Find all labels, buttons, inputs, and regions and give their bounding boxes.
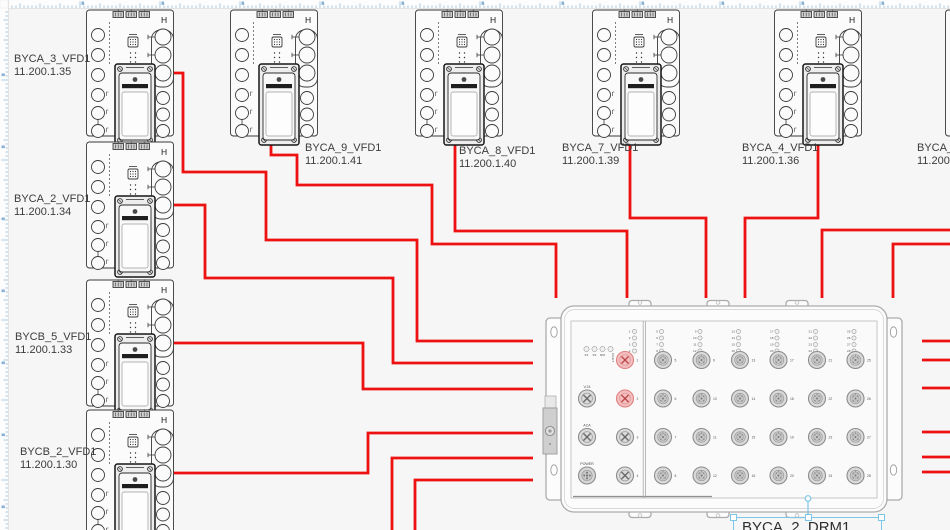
svg-text:3: 3 — [629, 343, 631, 347]
ruler-left — [0, 0, 9, 530]
svg-text:6: 6 — [656, 336, 658, 340]
device-name: BYCA_3_VFD1 — [14, 53, 90, 66]
vfd-drive-module — [115, 464, 155, 530]
device-ip: 11.200.1.40 — [459, 158, 535, 171]
drm-switch[interactable]: P1P2RMFAULT1234V.24ACAPOWER1234567856789… — [543, 301, 902, 518]
device-label[interactable]: BYCA_2_VFD111.200.1.34 — [14, 193, 90, 219]
m12-port-1[interactable] — [617, 352, 634, 369]
svg-text:4: 4 — [637, 474, 639, 478]
m12-port-4[interactable] — [617, 467, 634, 484]
m12-port-17[interactable] — [770, 352, 787, 369]
device-name: BYCB_5_VFD1 — [15, 331, 91, 344]
device-ip: 11.200.1.34 — [14, 206, 90, 219]
svg-text:16: 16 — [732, 349, 736, 353]
device-label[interactable]: BYCA_3_VFD111.200.1.35 — [14, 53, 90, 79]
svg-text:26: 26 — [867, 397, 871, 401]
svg-text:16: 16 — [752, 474, 756, 478]
m12-port-13[interactable] — [732, 352, 749, 369]
ethernet-wire-11[interactable] — [822, 230, 950, 298]
svg-text:20: 20 — [790, 474, 794, 478]
vfd-drive-module — [444, 64, 484, 145]
vfd-device[interactable]: H — [231, 9, 318, 145]
vfd-device[interactable]: H — [87, 279, 174, 415]
m12-port-5[interactable] — [655, 352, 672, 369]
svg-text:25: 25 — [867, 358, 871, 362]
svg-text:1: 1 — [629, 330, 631, 334]
vfd-drive-module — [115, 64, 155, 145]
svg-text:21: 21 — [809, 330, 813, 334]
svg-text:18: 18 — [790, 397, 794, 401]
svg-text:15: 15 — [732, 343, 736, 347]
device-label[interactable]: BYCB_2_VFD111.200.1.30 — [20, 446, 96, 472]
svg-text:10: 10 — [693, 336, 697, 340]
svg-text:12: 12 — [693, 349, 697, 353]
device-name: BYCA_9_VFD1 — [305, 142, 381, 155]
device-label[interactable]: BYCA_7_VFD111.200.1.39 — [562, 142, 638, 168]
device-ip: 11.200.1.35 — [14, 66, 90, 79]
vfd-drive-module — [115, 196, 155, 277]
m12-port-27[interactable] — [847, 429, 864, 446]
device-label[interactable]: BYCA_5_11.200.1 — [917, 142, 950, 168]
ethernet-wire-4[interactable] — [174, 433, 533, 473]
selection-handle[interactable] — [878, 514, 885, 521]
device-ip: 11.200.1.41 — [305, 155, 381, 168]
svg-text:28: 28 — [867, 474, 871, 478]
m12-port-21[interactable] — [809, 352, 826, 369]
svg-text:10: 10 — [713, 397, 717, 401]
device-h-label: H — [490, 15, 496, 25]
device-name: BYCA_4_VFD1 — [742, 142, 818, 155]
m12-port-26[interactable] — [847, 390, 864, 407]
svg-text:P1: P1 — [585, 353, 589, 357]
selection-anchor-handle[interactable] — [805, 496, 811, 502]
aux-port-power[interactable] — [579, 467, 596, 484]
ethernet-wire-12[interactable] — [893, 244, 950, 298]
svg-text:14: 14 — [752, 397, 756, 401]
svg-text:18: 18 — [770, 336, 774, 340]
svg-text:5: 5 — [675, 358, 677, 362]
svg-text:11: 11 — [713, 435, 717, 439]
svg-text:7: 7 — [656, 343, 658, 347]
svg-text:2: 2 — [637, 397, 639, 401]
vfd-device[interactable]: H — [946, 9, 950, 145]
aux-port-v24[interactable] — [579, 390, 596, 407]
topology-scene: HHHHHHHHHP1P2RMFAULT1234V.24ACAPOWER1234… — [0, 0, 950, 530]
svg-text:RM: RM — [600, 353, 605, 357]
svg-text:ACA: ACA — [583, 424, 591, 428]
svg-text:11: 11 — [693, 343, 696, 347]
m12-port-18[interactable] — [770, 390, 787, 407]
device-ip: 11.200.1.33 — [15, 344, 91, 357]
svg-text:25: 25 — [847, 330, 851, 334]
svg-text:23: 23 — [829, 435, 833, 439]
svg-text:6: 6 — [675, 397, 677, 401]
vfd-device[interactable]: H — [87, 409, 174, 530]
device-ip: 11.200.1.36 — [742, 155, 818, 168]
svg-text:P2: P2 — [593, 353, 597, 357]
m12-port-19[interactable] — [770, 429, 787, 446]
svg-text:15: 15 — [752, 435, 756, 439]
svg-text:13: 13 — [732, 330, 736, 334]
svg-text:FAULT: FAULT — [611, 353, 615, 362]
m12-port-23[interactable] — [809, 429, 826, 446]
m12-port-2[interactable] — [617, 390, 634, 407]
svg-text:2: 2 — [629, 336, 631, 340]
m12-port-22[interactable] — [809, 390, 826, 407]
m12-port-12[interactable] — [693, 467, 710, 484]
svg-text:24: 24 — [829, 474, 833, 478]
ethernet-wire-9[interactable] — [630, 140, 706, 298]
svg-text:9: 9 — [713, 358, 715, 362]
m12-port-24[interactable] — [809, 467, 826, 484]
svg-text:1: 1 — [637, 358, 639, 362]
vfd-drive-module — [803, 64, 843, 145]
svg-text:8: 8 — [675, 474, 677, 478]
m12-port-3[interactable] — [617, 429, 634, 446]
m12-port-16[interactable] — [732, 467, 749, 484]
vfd-device[interactable]: H — [87, 9, 174, 145]
m12-port-28[interactable] — [847, 467, 864, 484]
svg-text:17: 17 — [790, 358, 794, 362]
device-name: BYCA_2_VFD1 — [14, 193, 90, 206]
vfd-drive-module — [621, 64, 661, 145]
device-h-label: H — [849, 15, 855, 25]
device-h-label: H — [161, 15, 167, 25]
device-h-label: H — [305, 15, 311, 25]
svg-text:27: 27 — [867, 435, 871, 439]
device-h-label: H — [161, 147, 167, 157]
m12-port-11[interactable] — [693, 429, 710, 446]
m12-port-14[interactable] — [732, 390, 749, 407]
svg-text:7: 7 — [675, 435, 677, 439]
svg-text:21: 21 — [829, 358, 833, 362]
svg-text:22: 22 — [829, 397, 833, 401]
device-ip: 11.200.1.30 — [20, 459, 96, 472]
m12-port-25[interactable] — [847, 352, 864, 369]
svg-text:12: 12 — [713, 474, 717, 478]
m12-port-9[interactable] — [693, 352, 710, 369]
device-h-label: H — [161, 285, 167, 295]
m12-port-6[interactable] — [655, 390, 672, 407]
svg-text:27: 27 — [847, 343, 851, 347]
svg-text:19: 19 — [790, 435, 794, 439]
device-name: BYCA_7_VFD1 — [562, 142, 638, 155]
vfd-drive-module — [259, 64, 299, 145]
ethernet-wire-2[interactable] — [174, 205, 533, 363]
device-name: BYCA_8_VFD1 — [459, 145, 535, 158]
device-label[interactable]: BYCA_8_VFD111.200.1.40 — [459, 145, 535, 171]
svg-text:3: 3 — [637, 435, 639, 439]
svg-text:9: 9 — [695, 330, 697, 334]
svg-text:POWER: POWER — [580, 462, 594, 466]
svg-text:22: 22 — [809, 336, 813, 340]
ethernet-wire-5[interactable] — [392, 458, 533, 530]
svg-text:28: 28 — [847, 349, 851, 353]
device-label[interactable]: BYCB_5_VFD111.200.1.33 — [15, 331, 91, 357]
ruler-top — [0, 0, 950, 9]
device-name: BYCA_5_ — [917, 142, 950, 155]
vfd-drive-module — [115, 334, 155, 415]
aux-port-aca[interactable] — [579, 429, 596, 446]
device-ip: 11.200.1.39 — [562, 155, 638, 168]
device-label[interactable]: BYCA_4_VFD111.200.1.36 — [742, 142, 818, 168]
ethernet-wire-6[interactable] — [415, 480, 533, 530]
svg-text:5: 5 — [656, 330, 658, 334]
vfd-device[interactable]: H — [593, 9, 680, 145]
m12-port-8[interactable] — [655, 467, 672, 484]
device-h-label: H — [667, 15, 673, 25]
svg-text:V.24: V.24 — [583, 385, 590, 389]
m12-port-15[interactable] — [732, 429, 749, 446]
svg-text:14: 14 — [732, 336, 736, 340]
vfd-device[interactable]: H — [87, 141, 174, 277]
vfd-device[interactable]: H — [775, 9, 862, 145]
svg-text:23: 23 — [809, 343, 813, 347]
svg-text:19: 19 — [770, 343, 774, 347]
vfd-device[interactable]: H — [416, 9, 503, 145]
selection-box[interactable]: BYCA_2_DRM1 — [733, 517, 882, 530]
m12-port-20[interactable] — [770, 467, 787, 484]
m12-port-7[interactable] — [655, 429, 672, 446]
device-h-label: H — [161, 415, 167, 425]
svg-text:24: 24 — [809, 349, 813, 353]
din-clip-hook — [545, 396, 556, 408]
ethernet-wire-3[interactable] — [174, 343, 533, 389]
svg-text:20: 20 — [770, 349, 774, 353]
m12-port-10[interactable] — [693, 390, 710, 407]
selection-handle[interactable] — [805, 514, 812, 521]
svg-text:26: 26 — [847, 336, 851, 340]
svg-text:17: 17 — [770, 330, 774, 334]
device-name: BYCB_2_VFD1 — [20, 446, 96, 459]
diagram-canvas[interactable]: HHHHHHHHHP1P2RMFAULT1234V.24ACAPOWER1234… — [0, 0, 950, 530]
selection-handle[interactable] — [730, 514, 737, 521]
device-ip: 11.200.1 — [917, 155, 950, 168]
device-label[interactable]: BYCA_9_VFD111.200.1.41 — [305, 142, 381, 168]
svg-text:13: 13 — [752, 358, 756, 362]
